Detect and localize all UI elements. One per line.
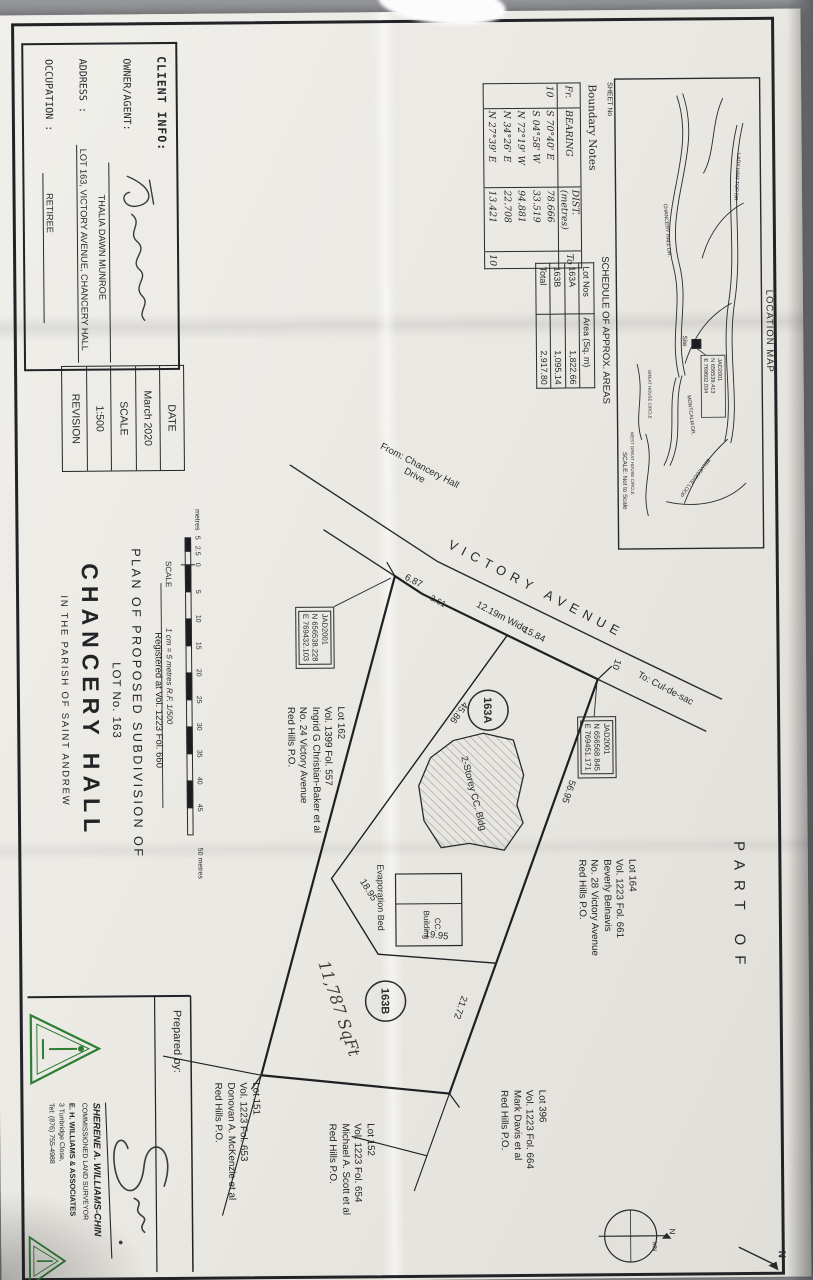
svg-text:30: 30	[195, 723, 202, 731]
sheet-no-label: SHEET No	[606, 82, 613, 116]
svg-text:35: 35	[195, 750, 202, 758]
map-scale-note: SCALE: Not to Scale	[621, 452, 629, 510]
client-info-header: CLIENT INFO:	[154, 56, 169, 151]
map-road-label: BELVEDERE LOOP	[678, 457, 711, 498]
map-road-label: WEST GREAT HOUSE CIRCLE	[630, 432, 636, 495]
owner-agent-label: OWNER/AGENT:	[120, 58, 132, 130]
svg-text:5: 5	[194, 590, 201, 594]
scale-label: SCALE	[110, 366, 135, 470]
corner-shadow	[0, 1190, 150, 1280]
part-of-label: PART OF	[730, 841, 748, 975]
svg-text:N: N	[776, 1251, 787, 1258]
schedule-table: Lot NosArea (Sq. m) 163A1,822.66 163B1,0…	[535, 262, 595, 389]
coord-box-2: JAD2001 N 656568.845 E 769451.171	[577, 716, 616, 778]
schedule-row: 163A1,822.66	[565, 263, 581, 388]
client-info-box: CLIENT INFO: OWNER/AGENT: THALIA DAWN MU…	[21, 42, 180, 371]
surveyor-phone: Tel: (876) 755-4988	[47, 1103, 55, 1164]
company-logo	[31, 1015, 100, 1084]
plan-title-line1: PLAN OF PROPOSED SUBDIVISION OF	[129, 548, 146, 852]
svg-text:15: 15	[194, 642, 201, 650]
svg-text:JAD2001: JAD2001	[716, 358, 722, 381]
photo-of-survey-plan: LADY HAM TOR DR CHANCERY HALL DR. MONTCA…	[0, 0, 813, 1280]
scale-bar	[181, 538, 198, 835]
neighbor-lot-151: Lot 151Vol. 1223 Fol. 653Donovan A. McKe…	[211, 1082, 262, 1200]
boundary-row: 10S 70°40' E78.666	[542, 83, 559, 268]
svg-text:25: 25	[195, 696, 202, 704]
boundary-row: N 72°19' W94.881	[513, 83, 529, 268]
svg-text:45: 45	[196, 804, 203, 812]
occupation-value: RETIREE	[45, 193, 55, 233]
svg-text:40: 40	[196, 777, 203, 785]
date-value: March 2020	[135, 366, 160, 470]
scale-value: 1:500	[86, 367, 111, 471]
survey-plan-document: LADY HAM TOR DR CHANCERY HALL DR. MONTCA…	[0, 8, 812, 1280]
map-road-label: CHANCERY HALL DR.	[662, 203, 672, 257]
map-road-label: MONTCALM DR.	[685, 395, 695, 435]
title-block: Registered at Vol. 1223 Fol. 660 PLAN OF…	[58, 548, 166, 853]
svg-text:20: 20	[195, 669, 202, 677]
schedule-title: SCHEDULE OF APPROX. AREAS	[599, 256, 611, 404]
edge-shadow	[787, 0, 813, 1280]
lot-163a-label: 163A	[481, 697, 493, 723]
svg-text:2.5: 2.5	[194, 546, 201, 556]
site-label: Site	[681, 335, 688, 347]
revision-label: REVISION	[63, 367, 87, 471]
site-marker	[692, 339, 701, 348]
neighbor-lot-396: Lot 396Vol. 1223 Fol. 664Mark Davis et a…	[497, 1090, 548, 1169]
svg-text:metres: metres	[193, 509, 200, 531]
north-arrow: N	[739, 1247, 787, 1265]
neighbor-lot-152: Lot 152Vol. 1223 Fol. 654Michael A. Scot…	[325, 1123, 376, 1215]
coord-box-1: JAD2001 N 656538.228 E 769432.103	[295, 607, 334, 669]
svg-text:SCALE: SCALE	[164, 561, 173, 587]
location-map-title: LOCATION MAP	[763, 290, 775, 373]
svg-text:MN: MN	[651, 1242, 657, 1251]
svg-text:10: 10	[194, 615, 201, 623]
boundary-notes-title: Boundary Notes	[586, 84, 599, 170]
map-road-label: GREAT HOUSE CIRCLE	[647, 370, 652, 419]
neighbor-lot-162: Lot 162Vol. 1399 Fol. 557Ingrid G Christ…	[283, 706, 347, 833]
boundary-row: N 27°39' E13.42110	[484, 84, 501, 269]
schedule-row: Total2,917.80	[536, 263, 552, 388]
boundary-row: N 34°26' E22.708	[499, 84, 515, 269]
schedule-row: 163B1,095.14	[550, 263, 566, 388]
prepared-by-label: Prepared by:	[171, 1010, 184, 1073]
svg-text:N 656539.413: N 656539.413	[709, 358, 715, 393]
road-lines	[290, 461, 722, 735]
site-coord-box: JAD2001 N 656539.413 E 769602.034	[701, 355, 726, 417]
address-value: LOT 163, VICTORY AVENUE, CHANCERY HALL	[78, 149, 90, 351]
plan-title-parish: IN THE PARISH OF SAINT ANDREW	[58, 549, 72, 853]
boundary-row: S 04°58' W33.519	[528, 83, 544, 268]
plan-title-lot: LOT No. 163	[109, 548, 124, 852]
neighbor-lot-164: Lot 164Vol. 1223 Fol. 661Beverly Belnavi…	[574, 859, 638, 956]
svg-text:N: N	[668, 1229, 677, 1235]
occupation-label: OCCUPATION :	[42, 59, 54, 131]
location-map	[615, 78, 764, 549]
plan-title-name: CHANCERY HALL	[76, 549, 106, 853]
svg-text:E 769602.034: E 769602.034	[702, 358, 708, 393]
lot-163b-label: 163B	[378, 988, 390, 1014]
boundary-notes-table: Fr. BEARING DIST.(metres) To 10S 70°40' …	[483, 82, 582, 269]
surveyor-address: 3 Tunbridge Close,	[57, 1103, 65, 1162]
svg-text:0: 0	[194, 563, 201, 567]
paper-sheet: LADY HAM TOR DR CHANCERY HALL DR. MONTCA…	[0, 8, 812, 1280]
date-label: DATE	[159, 366, 184, 470]
svg-text:50 metres: 50 metres	[196, 848, 203, 880]
svg-text:5: 5	[194, 536, 201, 540]
date-scale-box: DATE March 2020 SCALE 1:500 REVISION	[61, 365, 185, 472]
svg-text:1 cm = 5 metres R.F. 1/500: 1 cm = 5 metres R.F. 1/500	[164, 628, 174, 725]
address-label: ADDRESS :	[76, 59, 87, 113]
compass-rose: N MN	[598, 1210, 676, 1263]
map-road-label: LADY HAM TOR DR	[732, 153, 741, 201]
